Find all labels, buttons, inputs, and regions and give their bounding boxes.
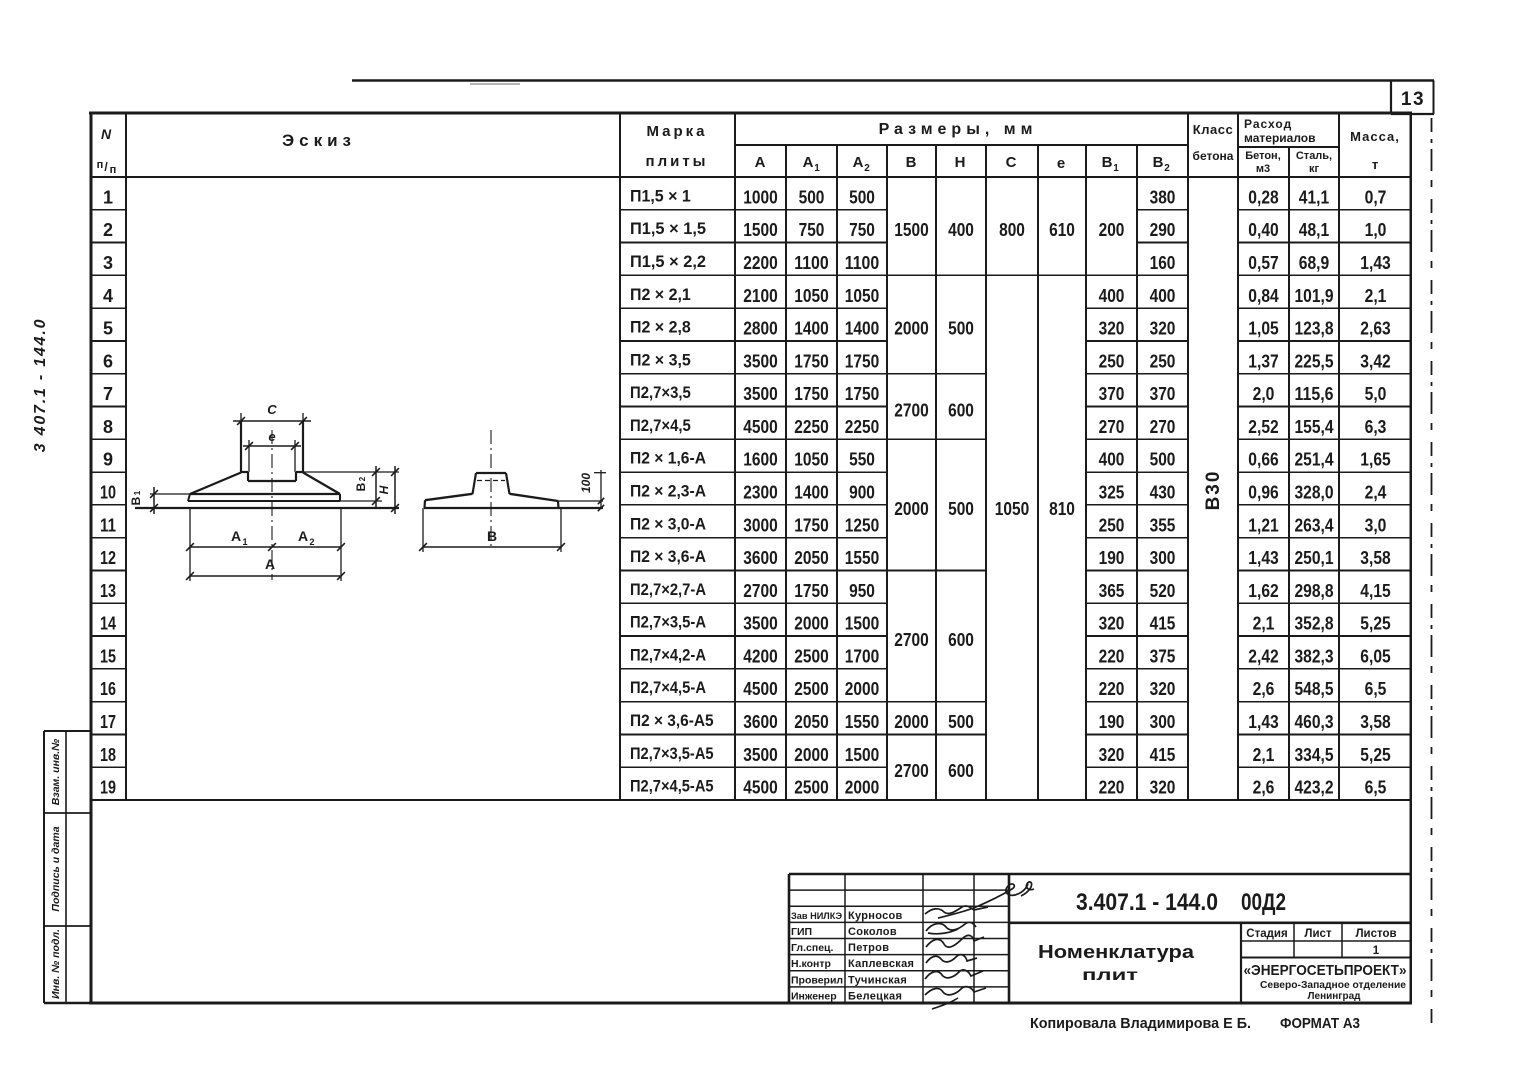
svg-text:П1,5 × 1,5: П1,5 × 1,5 (630, 220, 706, 238)
svg-text:3,58: 3,58 (1360, 711, 1390, 732)
svg-text:Каплевская: Каплевская (848, 958, 914, 970)
svg-text:1750: 1750 (794, 580, 828, 601)
svg-text:500: 500 (948, 318, 974, 339)
svg-text:2,1: 2,1 (1253, 744, 1275, 765)
svg-text:Взам. инв.№: Взам. инв.№ (50, 739, 62, 805)
svg-text:Подпись и дата: Подпись и дата (50, 826, 62, 911)
svg-text:250,1: 250,1 (1295, 547, 1334, 568)
svg-text:200: 200 (1099, 219, 1125, 240)
svg-text:900: 900 (849, 482, 875, 503)
svg-text:3,58: 3,58 (1360, 547, 1390, 568)
svg-text:550: 550 (849, 449, 875, 470)
svg-text:2,1: 2,1 (1365, 285, 1387, 306)
svg-text:В: В (487, 528, 497, 544)
svg-text:1500: 1500 (845, 744, 879, 765)
svg-text:1750: 1750 (794, 350, 828, 371)
svg-text:Ленинград: Ленинград (1308, 991, 1362, 1002)
svg-text:400: 400 (1099, 285, 1125, 306)
svg-text:19: 19 (100, 778, 116, 798)
svg-text:750: 750 (799, 219, 825, 240)
svg-text:ГИП: ГИП (791, 926, 812, 938)
svg-text:1,21: 1,21 (1248, 514, 1278, 535)
svg-text:1500: 1500 (894, 219, 928, 240)
svg-text:1050: 1050 (794, 285, 828, 306)
svg-text:3500: 3500 (743, 613, 777, 634)
svg-text:2000: 2000 (894, 498, 928, 519)
svg-text:Класс: Класс (1193, 122, 1233, 137)
svg-text:2000: 2000 (845, 678, 879, 699)
svg-text:1500: 1500 (845, 613, 879, 634)
svg-text:Гл.спец.: Гл.спец. (791, 942, 833, 954)
svg-text:С: С (267, 402, 277, 417)
svg-text:Листов: Листов (1355, 928, 1396, 940)
svg-text:101,9: 101,9 (1295, 285, 1334, 306)
svg-text:1750: 1750 (794, 383, 828, 404)
svg-text:950: 950 (849, 580, 875, 601)
svg-text:1,43: 1,43 (1248, 711, 1278, 732)
svg-text:3600: 3600 (743, 711, 777, 732)
svg-text:Лист: Лист (1304, 928, 1332, 940)
svg-text:Н.контр: Н.контр (791, 958, 831, 970)
svg-text:48,1: 48,1 (1299, 219, 1329, 240)
svg-text:13: 13 (1401, 89, 1425, 110)
svg-text:1,62: 1,62 (1248, 580, 1278, 601)
svg-text:250: 250 (1099, 514, 1125, 535)
svg-text:2,6: 2,6 (1253, 777, 1275, 798)
svg-text:Марка: Марка (646, 123, 707, 140)
svg-text:220: 220 (1099, 777, 1125, 798)
svg-text:320: 320 (1099, 613, 1125, 634)
svg-text:П2 × 1,6-А: П2 × 1,6-А (630, 450, 706, 468)
svg-text:1550: 1550 (845, 711, 879, 732)
svg-text:320: 320 (1150, 777, 1176, 798)
svg-text:П2,7×4,5-А: П2,7×4,5-А (630, 679, 706, 697)
svg-text:П2 × 3,5: П2 × 3,5 (630, 351, 691, 369)
svg-text:8: 8 (103, 417, 113, 437)
svg-text:4: 4 (103, 286, 113, 306)
svg-text:4500: 4500 (743, 678, 777, 699)
svg-text:Петров: Петров (848, 942, 889, 954)
svg-text:Тучинская: Тучинская (848, 974, 907, 986)
svg-text:2200: 2200 (743, 252, 777, 273)
svg-text:0,40: 0,40 (1248, 219, 1278, 240)
svg-text:10: 10 (100, 483, 116, 503)
svg-text:2100: 2100 (743, 285, 777, 306)
svg-text:2800: 2800 (743, 318, 777, 339)
svg-text:600: 600 (948, 629, 974, 650)
svg-text:А: А (853, 154, 864, 171)
svg-text:Сталь,: Сталь, (1296, 150, 1332, 162)
svg-text:9: 9 (103, 450, 113, 470)
svg-text:400: 400 (948, 219, 974, 240)
svg-text:5: 5 (103, 319, 113, 339)
svg-text:2: 2 (358, 476, 367, 481)
svg-text:0,28: 0,28 (1248, 186, 1278, 207)
svg-text:2700: 2700 (894, 760, 928, 781)
svg-text:3: 3 (103, 253, 113, 273)
svg-text:П2 × 3,0-А: П2 × 3,0-А (630, 515, 706, 533)
svg-text:500: 500 (948, 498, 974, 519)
svg-text:3500: 3500 (743, 350, 777, 371)
svg-text:1750: 1750 (845, 350, 879, 371)
svg-text:155,4: 155,4 (1295, 416, 1335, 437)
svg-text:290: 290 (1150, 219, 1176, 240)
svg-text:334,5: 334,5 (1295, 744, 1334, 765)
svg-text:160: 160 (1150, 252, 1176, 273)
svg-text:320: 320 (1150, 678, 1176, 699)
svg-text:15: 15 (100, 646, 116, 666)
svg-text:П2,7×3,5: П2,7×3,5 (630, 384, 691, 402)
svg-text:В: В (1102, 154, 1113, 171)
svg-text:355: 355 (1150, 514, 1176, 535)
svg-text:6: 6 (103, 351, 113, 371)
svg-text:6,05: 6,05 (1360, 645, 1390, 666)
svg-text:2,42: 2,42 (1248, 645, 1278, 666)
svg-text:1250: 1250 (845, 514, 879, 535)
svg-text:500: 500 (799, 186, 825, 207)
svg-text:320: 320 (1099, 318, 1125, 339)
svg-text:4500: 4500 (743, 416, 777, 437)
svg-text:68,9: 68,9 (1299, 252, 1329, 273)
svg-text:298,8: 298,8 (1295, 580, 1334, 601)
svg-text:2500: 2500 (794, 777, 828, 798)
svg-text:Белецкая: Белецкая (848, 990, 902, 1002)
svg-text:382,3: 382,3 (1295, 645, 1334, 666)
svg-text:2300: 2300 (743, 482, 777, 503)
svg-text:2000: 2000 (794, 744, 828, 765)
svg-text:115,6: 115,6 (1295, 383, 1334, 404)
svg-text:370: 370 (1099, 383, 1125, 404)
svg-text:380: 380 (1150, 186, 1176, 207)
svg-text:П2,7×2,7-А: П2,7×2,7-А (630, 581, 706, 599)
svg-text:1: 1 (1373, 945, 1380, 957)
svg-text:Зав НИЛКЭ: Зав НИЛКЭ (791, 911, 842, 921)
svg-text:А: А (298, 528, 308, 544)
svg-text:5,25: 5,25 (1360, 744, 1390, 765)
svg-text:ФОРМАТ А3: ФОРМАТ А3 (1280, 1015, 1360, 1032)
svg-text:1400: 1400 (845, 318, 879, 339)
svg-text:П2 × 2,1: П2 × 2,1 (630, 286, 691, 304)
svg-text:А: А (265, 556, 275, 572)
svg-text:1750: 1750 (845, 383, 879, 404)
svg-text:6,5: 6,5 (1365, 678, 1387, 699)
svg-text:300: 300 (1150, 547, 1176, 568)
svg-text:Номенклатура: Номенклатура (1038, 942, 1195, 962)
svg-text:2000: 2000 (794, 613, 828, 634)
svg-text:1: 1 (133, 490, 142, 495)
svg-text:16: 16 (100, 679, 116, 699)
svg-text:2: 2 (309, 537, 314, 547)
svg-text:600: 600 (948, 760, 974, 781)
svg-text:1,37: 1,37 (1248, 350, 1278, 371)
svg-text:250: 250 (1099, 350, 1125, 371)
svg-text:610: 610 (1049, 219, 1075, 240)
svg-text:А: А (803, 154, 814, 171)
svg-text:1050: 1050 (794, 449, 828, 470)
svg-text:N: N (101, 126, 112, 142)
svg-text:бетона: бетона (1193, 149, 1234, 163)
svg-text:1100: 1100 (845, 252, 879, 273)
svg-text:251,4: 251,4 (1295, 449, 1335, 470)
svg-text:1700: 1700 (845, 645, 879, 666)
svg-text:2000: 2000 (894, 318, 928, 339)
svg-text:В: В (129, 496, 143, 505)
svg-text:1,05: 1,05 (1248, 318, 1278, 339)
svg-text:500: 500 (1150, 449, 1176, 470)
svg-text:750: 750 (849, 219, 875, 240)
svg-text:320: 320 (1099, 744, 1125, 765)
svg-text:2050: 2050 (794, 547, 828, 568)
svg-text:Стадия: Стадия (1246, 928, 1287, 940)
svg-text:1600: 1600 (743, 449, 777, 470)
svg-text:0,7: 0,7 (1365, 186, 1387, 207)
svg-text:материалов: материалов (1244, 131, 1316, 145)
svg-text:548,5: 548,5 (1295, 678, 1334, 699)
svg-text:П2 × 3,6-А5: П2 × 3,6-А5 (630, 712, 714, 730)
svg-text:11: 11 (100, 515, 116, 535)
svg-text:3500: 3500 (743, 744, 777, 765)
svg-text:0,84: 0,84 (1248, 285, 1279, 306)
svg-text:м3: м3 (1256, 163, 1270, 175)
svg-text:Масса,: Масса, (1350, 129, 1400, 144)
svg-text:А: А (755, 154, 766, 171)
svg-text:2500: 2500 (794, 678, 828, 699)
svg-text:1400: 1400 (794, 318, 828, 339)
svg-text:Копировала Владимирова Е Б.: Копировала Владимирова Е Б. (1030, 1015, 1251, 1032)
svg-text:Курносов: Курносов (848, 910, 903, 922)
svg-text:1750: 1750 (794, 514, 828, 535)
svg-text:3,0: 3,0 (1365, 514, 1387, 535)
svg-text:2,63: 2,63 (1360, 318, 1390, 339)
svg-text:4,15: 4,15 (1360, 580, 1390, 601)
svg-text:100: 100 (579, 473, 593, 493)
svg-text:4500: 4500 (743, 777, 777, 798)
svg-text:320: 320 (1150, 318, 1176, 339)
svg-text:Размеры, мм: Размеры, мм (879, 121, 1038, 138)
svg-text:6,3: 6,3 (1365, 416, 1387, 437)
svg-text:430: 430 (1150, 482, 1176, 503)
svg-text:2700: 2700 (743, 580, 777, 601)
svg-text:1: 1 (1113, 163, 1119, 174)
svg-text:325: 325 (1099, 482, 1125, 503)
svg-text:1550: 1550 (845, 547, 879, 568)
svg-text:1400: 1400 (794, 482, 828, 503)
svg-text:352,8: 352,8 (1295, 613, 1334, 634)
svg-text:00Д2: 00Д2 (1241, 889, 1286, 916)
svg-text:4200: 4200 (743, 645, 777, 666)
svg-text:400: 400 (1099, 449, 1125, 470)
svg-text:П2 × 3,6-А: П2 × 3,6-А (630, 548, 706, 566)
svg-text:2700: 2700 (894, 629, 928, 650)
svg-text:3,42: 3,42 (1360, 350, 1390, 371)
svg-text:5,0: 5,0 (1365, 383, 1387, 404)
svg-text:Н: Н (377, 485, 391, 494)
svg-text:600: 600 (948, 400, 974, 421)
svg-text:18: 18 (100, 745, 116, 765)
svg-text:375: 375 (1150, 645, 1176, 666)
svg-text:3.407.1 - 144.0: 3.407.1 - 144.0 (1076, 889, 1218, 916)
svg-text:П2,7×4,5: П2,7×4,5 (630, 417, 691, 435)
svg-text:кг: кг (1309, 163, 1320, 175)
svg-text:П2 × 2,8: П2 × 2,8 (630, 319, 691, 337)
svg-text:3600: 3600 (743, 547, 777, 568)
svg-text:В: В (906, 154, 917, 171)
svg-text:14: 14 (100, 614, 116, 634)
svg-text:Соколов: Соколов (848, 926, 897, 938)
svg-text:Эскиз: Эскиз (282, 131, 356, 150)
svg-text:3500: 3500 (743, 383, 777, 404)
svg-text:П2 × 2,3-А: П2 × 2,3-А (630, 483, 706, 501)
svg-text:В: В (354, 482, 368, 491)
svg-text:2: 2 (1164, 163, 1170, 174)
svg-text:0,96: 0,96 (1248, 482, 1278, 503)
svg-text:1,43: 1,43 (1248, 547, 1278, 568)
svg-text:123,8: 123,8 (1295, 318, 1334, 339)
svg-text:12: 12 (100, 548, 116, 568)
svg-text:Расход: Расход (1244, 117, 1292, 131)
svg-text:415: 415 (1150, 613, 1176, 634)
svg-text:270: 270 (1099, 416, 1125, 437)
svg-text:500: 500 (948, 711, 974, 732)
svg-text:1,65: 1,65 (1360, 449, 1390, 470)
svg-text:П2,7×3,5-А: П2,7×3,5-А (630, 614, 706, 632)
svg-text:41,1: 41,1 (1299, 186, 1329, 207)
svg-text:263,4: 263,4 (1295, 514, 1335, 535)
svg-text:«ЭНЕРГОСЕТЬПРОЕКТ»: «ЭНЕРГОСЕТЬПРОЕКТ» (1244, 962, 1407, 979)
svg-text:Н: Н (955, 154, 966, 171)
svg-text:1100: 1100 (794, 252, 828, 273)
svg-text:460,3: 460,3 (1295, 711, 1334, 732)
svg-text:П2,7×3,5-А5: П2,7×3,5-А5 (630, 745, 714, 763)
svg-text:2,1: 2,1 (1253, 613, 1275, 634)
svg-text:С: С (1006, 154, 1017, 171)
svg-text:270: 270 (1150, 416, 1176, 437)
svg-text:2250: 2250 (845, 416, 879, 437)
svg-text:В: В (1153, 154, 1164, 171)
svg-text:П2,7×4,2-А: П2,7×4,2-А (630, 646, 706, 664)
svg-text:415: 415 (1150, 744, 1176, 765)
svg-text:1: 1 (103, 187, 113, 207)
svg-text:6,5: 6,5 (1365, 777, 1387, 798)
svg-text:2000: 2000 (845, 777, 879, 798)
svg-text:плит: плит (1082, 967, 1138, 984)
svg-text:1,43: 1,43 (1360, 252, 1390, 273)
svg-text:3 407.1 - 144.0: 3 407.1 - 144.0 (32, 318, 49, 453)
svg-text:0,66: 0,66 (1248, 449, 1278, 470)
svg-text:е: е (1057, 155, 1065, 172)
svg-text:13: 13 (100, 581, 116, 601)
svg-text:1,0: 1,0 (1365, 219, 1387, 240)
svg-text:250: 250 (1150, 350, 1176, 371)
svg-text:328,0: 328,0 (1295, 482, 1334, 503)
svg-text:1000: 1000 (743, 186, 777, 207)
svg-text:423,2: 423,2 (1295, 777, 1334, 798)
svg-text:2700: 2700 (894, 400, 928, 421)
svg-text:5,25: 5,25 (1360, 613, 1390, 634)
svg-text:1050: 1050 (995, 498, 1029, 519)
svg-text:1050: 1050 (845, 285, 879, 306)
svg-text:810: 810 (1049, 498, 1075, 519)
svg-text:плиты: плиты (646, 153, 709, 170)
svg-text:В30: В30 (1203, 470, 1224, 511)
svg-text:220: 220 (1099, 645, 1125, 666)
svg-text:225,5: 225,5 (1295, 350, 1334, 371)
svg-text:17: 17 (100, 712, 116, 732)
svg-text:П1,5 × 2,2: П1,5 × 2,2 (630, 253, 706, 271)
svg-text:500: 500 (849, 186, 875, 207)
svg-text:520: 520 (1150, 580, 1176, 601)
svg-text:300: 300 (1150, 711, 1176, 732)
svg-text:Проверил: Проверил (791, 974, 843, 986)
svg-text:Инв. № подл.: Инв. № подл. (50, 929, 62, 999)
svg-text:365: 365 (1099, 580, 1125, 601)
svg-text:2250: 2250 (794, 416, 828, 437)
svg-text:7: 7 (103, 384, 113, 404)
svg-text:П1,5 × 1: П1,5 × 1 (630, 187, 691, 205)
svg-text:е: е (268, 429, 275, 444)
svg-text:Северо-Западное отделение: Северо-Западное отделение (1260, 980, 1406, 991)
svg-text:2: 2 (864, 163, 870, 174)
svg-text:П2,7×4,5-А5: П2,7×4,5-А5 (630, 778, 714, 796)
svg-text:370: 370 (1150, 383, 1176, 404)
svg-text:1: 1 (814, 163, 820, 174)
svg-text:2,0: 2,0 (1253, 383, 1275, 404)
svg-text:3000: 3000 (743, 514, 777, 535)
svg-text:800: 800 (999, 219, 1025, 240)
svg-text:Бетон,: Бетон, (1245, 150, 1281, 162)
svg-text:Инженер: Инженер (791, 990, 837, 1002)
svg-text:2050: 2050 (794, 711, 828, 732)
svg-text:2,4: 2,4 (1365, 482, 1387, 503)
svg-text:190: 190 (1099, 547, 1125, 568)
svg-text:1: 1 (242, 537, 247, 547)
svg-text:2,52: 2,52 (1248, 416, 1278, 437)
svg-text:т: т (1372, 157, 1378, 172)
svg-text:0,57: 0,57 (1248, 252, 1278, 273)
svg-text:2500: 2500 (794, 645, 828, 666)
svg-text:220: 220 (1099, 678, 1125, 699)
svg-text:1500: 1500 (743, 219, 777, 240)
svg-text:190: 190 (1099, 711, 1125, 732)
svg-text:2,6: 2,6 (1253, 678, 1275, 699)
svg-text:А: А (231, 528, 241, 544)
svg-text:п: п (110, 164, 117, 176)
svg-text:2: 2 (103, 220, 113, 240)
svg-text:2000: 2000 (894, 711, 928, 732)
svg-text:400: 400 (1150, 285, 1176, 306)
svg-text:п: п (97, 159, 104, 171)
